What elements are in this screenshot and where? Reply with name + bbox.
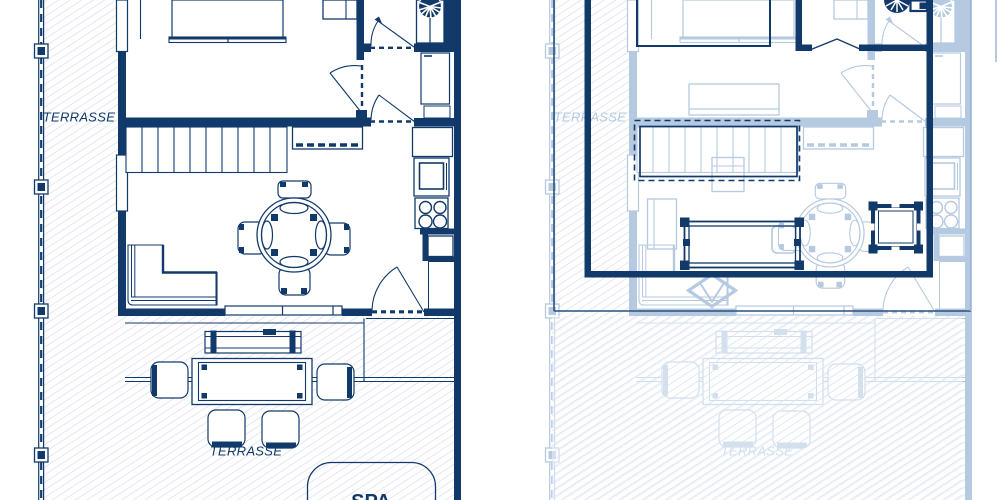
svg-text:SPA: SPA xyxy=(351,491,391,500)
